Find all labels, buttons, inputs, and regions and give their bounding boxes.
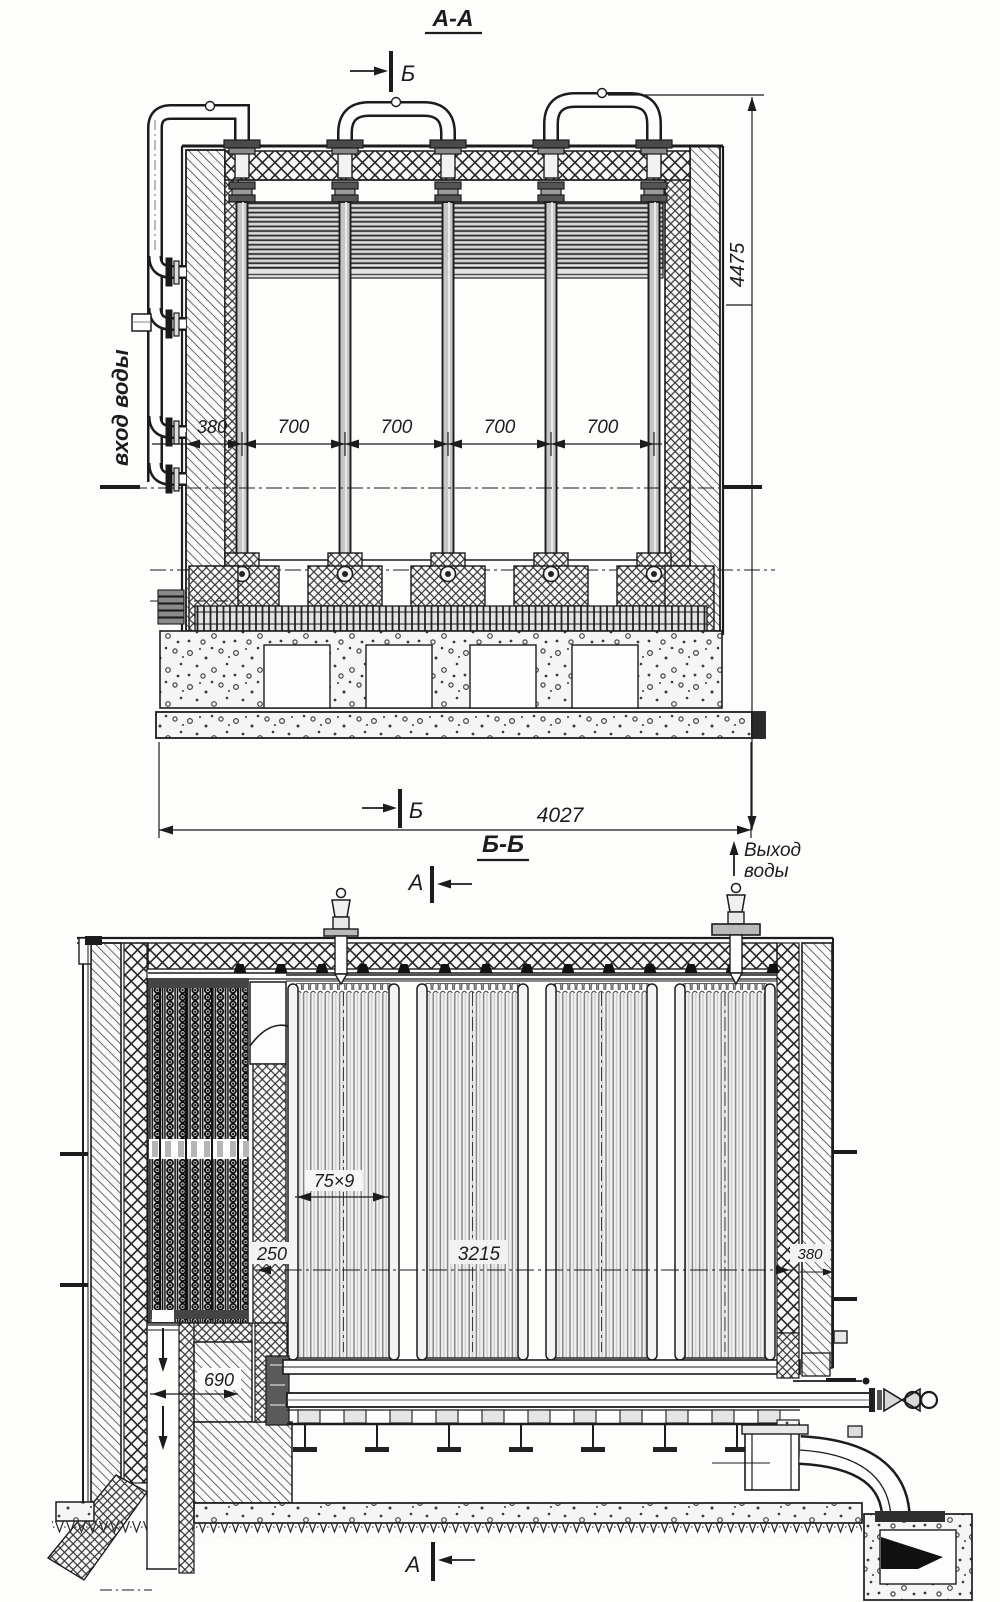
svg-text:Б: Б bbox=[409, 798, 423, 823]
svg-text:вход воды: вход воды bbox=[108, 349, 133, 466]
svg-text:380: 380 bbox=[797, 1246, 823, 1263]
svg-text:Выход: Выход bbox=[744, 840, 801, 861]
svg-text:Б-Б: Б-Б bbox=[482, 831, 524, 858]
svg-text:690: 690 bbox=[204, 1370, 234, 1390]
svg-text:250: 250 bbox=[256, 1244, 287, 1264]
svg-text:А: А bbox=[404, 1552, 421, 1577]
svg-text:700: 700 bbox=[381, 417, 413, 438]
svg-text:4475: 4475 bbox=[727, 242, 749, 287]
svg-text:380: 380 bbox=[197, 417, 227, 437]
svg-text:4027: 4027 bbox=[537, 804, 585, 827]
svg-text:75×9: 75×9 bbox=[314, 1171, 355, 1191]
svg-text:700: 700 bbox=[587, 417, 619, 438]
svg-text:3215: 3215 bbox=[458, 1244, 501, 1265]
svg-text:А: А bbox=[407, 870, 424, 895]
svg-text:700: 700 bbox=[278, 417, 310, 438]
svg-text:воды: воды bbox=[744, 861, 789, 882]
svg-text:А-А: А-А bbox=[432, 5, 474, 31]
svg-text:Б: Б bbox=[401, 61, 415, 86]
svg-text:700: 700 bbox=[484, 417, 516, 438]
